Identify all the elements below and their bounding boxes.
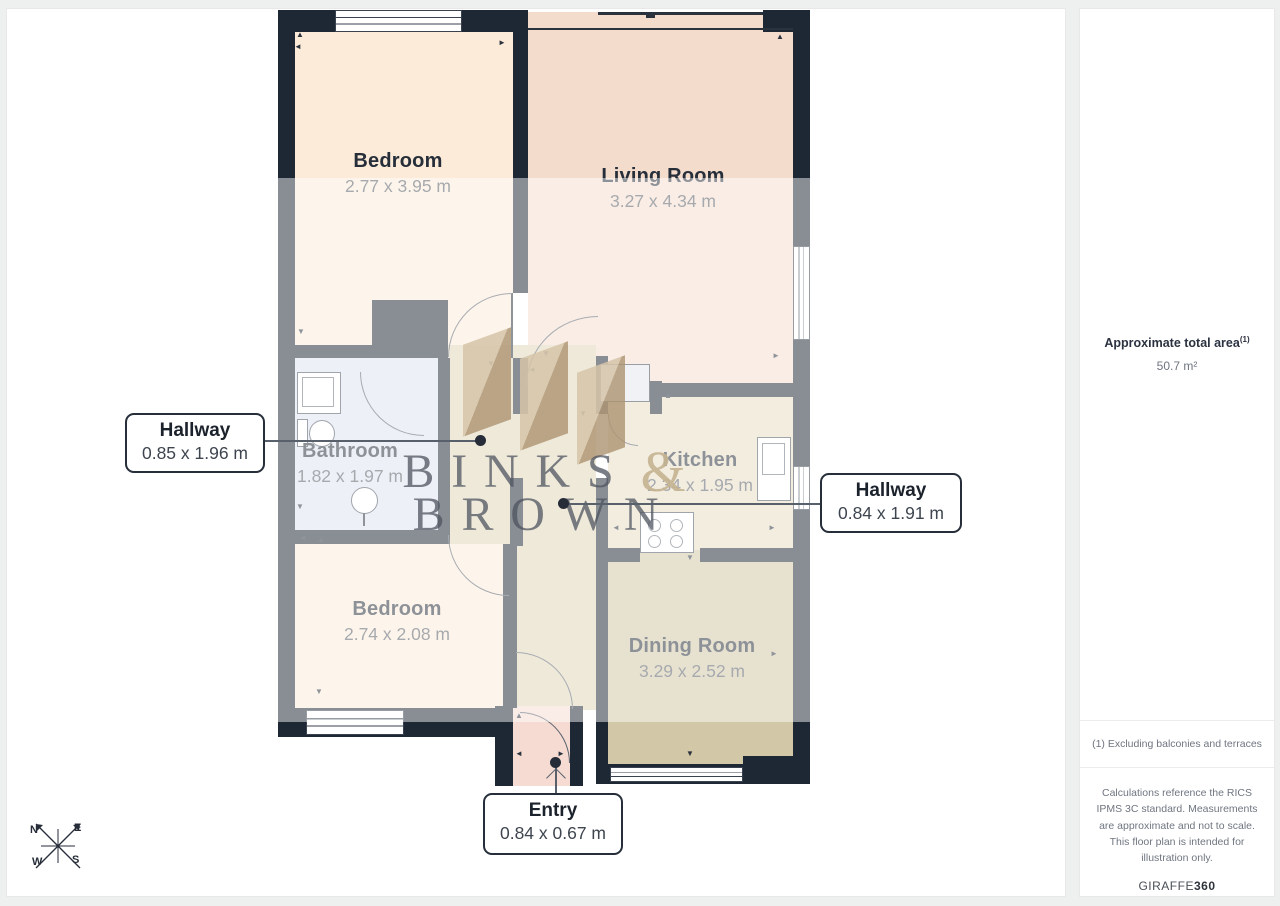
callout-title: Entry	[485, 800, 621, 822]
callout-title: Hallway	[822, 480, 960, 502]
dimension-tick: ▲	[776, 33, 784, 41]
bay-window-line	[598, 12, 763, 15]
floorplan: ▲ ◄ ► ▼ ▲ ▼ ▲ ▼ ◄ ▲ ▼ ▼ ◄ ▼ ◄ ► ▼ ► ▼ ▲ …	[0, 0, 1280, 906]
dimension-tick: ▲	[296, 31, 304, 39]
callout-dims: 0.84 x 0.67 m	[485, 823, 621, 844]
callout-entry: Entry 0.84 x 0.67 m	[483, 793, 623, 855]
anchor-dot-hallway-right	[558, 498, 569, 509]
inner-wall-line	[528, 28, 793, 30]
anchor-dot-entry	[550, 757, 561, 768]
anchor-dot-hallway-left	[475, 435, 486, 446]
bay-window-tick	[646, 12, 655, 18]
callout-title: Hallway	[127, 420, 263, 442]
binksbrown-logo-icon	[463, 327, 511, 436]
compass-north: N	[30, 824, 38, 836]
compass-south: S	[72, 854, 79, 866]
leader-line-hallway-right	[568, 503, 820, 505]
callout-dims: 0.84 x 1.91 m	[822, 503, 960, 524]
window-dining	[610, 767, 743, 782]
dimension-tick: ◄	[515, 750, 523, 758]
window-bedroom-1	[335, 10, 462, 32]
dimension-tick: ►	[498, 39, 506, 47]
compass-west: W	[32, 856, 42, 868]
callout-hallway-left: Hallway 0.85 x 1.96 m	[125, 413, 265, 473]
callout-dims: 0.85 x 1.96 m	[127, 443, 263, 464]
watermark-line-2: BROWN	[278, 487, 810, 542]
binksbrown-logo-icon	[520, 341, 568, 450]
dimension-tick: ▼	[686, 750, 694, 758]
room-name: Bedroom	[345, 150, 451, 173]
leader-line-hallway-left	[265, 440, 478, 442]
wall	[462, 10, 528, 32]
callout-hallway-right: Hallway 0.84 x 1.91 m	[820, 473, 962, 533]
compass-east: E	[74, 822, 81, 834]
dimension-tick: ◄	[294, 43, 302, 51]
